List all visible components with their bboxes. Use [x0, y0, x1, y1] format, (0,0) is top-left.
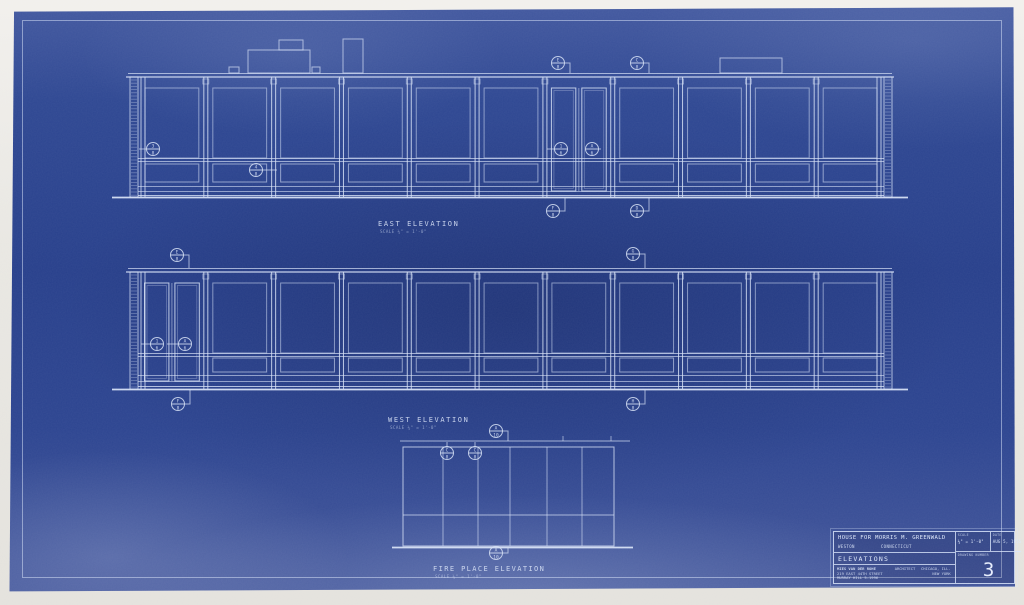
date-cell: DATE AUG 5, 1955 [991, 532, 1022, 551]
project-location: WESTON CONNECTICUT [838, 544, 951, 549]
date-value: AUG 5, 1955 [993, 539, 1022, 544]
scale-label: SCALE [958, 533, 990, 537]
title-block-left: HOUSE FOR MORRIS M. GREENWALD WESTON CON… [834, 532, 956, 583]
title-block: HOUSE FOR MORRIS M. GREENWALD WESTON CON… [833, 531, 1015, 584]
architect-city-2: NEW YORK [921, 572, 951, 577]
scale-date-row: SCALE ¼" = 1'-0" DATE AUG 5, 1955 [956, 532, 1022, 552]
architect-address-block: MIES VAN DER ROHE 219 EAST 44TH STREET M… [837, 567, 889, 583]
title-block-right: SCALE ¼" = 1'-0" DATE AUG 5, 1955 DRAWIN… [956, 532, 1022, 583]
architect-block: MIES VAN DER ROHE 219 EAST 44TH STREET M… [834, 565, 955, 583]
architect-role: ARCHITECT [889, 567, 921, 583]
drawing-number-label: DRAWING NUMBER [958, 553, 1022, 557]
project-state: CONNECTICUT [881, 544, 912, 549]
sheet-title: ELEVATIONS [834, 553, 955, 565]
architect-cities: CHICAGO, ILL. NEW YORK [921, 567, 953, 583]
project-town: WESTON [838, 544, 855, 549]
scale-value: ¼" = 1'-0" [958, 539, 990, 544]
project-name: HOUSE FOR MORRIS M. GREENWALD [838, 535, 951, 541]
blueprint-sheet [9, 7, 1015, 592]
project-row: HOUSE FOR MORRIS M. GREENWALD WESTON CON… [834, 532, 955, 553]
date-label: DATE [993, 533, 1022, 537]
architect-phone: MURRAY HILL 5-1996 [837, 576, 889, 581]
drawing-number: 3 [956, 559, 1022, 581]
drawing-number-cell: DRAWING NUMBER 3 [956, 552, 1022, 583]
scale-cell: SCALE ¼" = 1'-0" [956, 532, 991, 551]
page: 384816A6E8C8F8D8EAST ELEVATIONSCALE ¼" =… [0, 0, 1024, 605]
